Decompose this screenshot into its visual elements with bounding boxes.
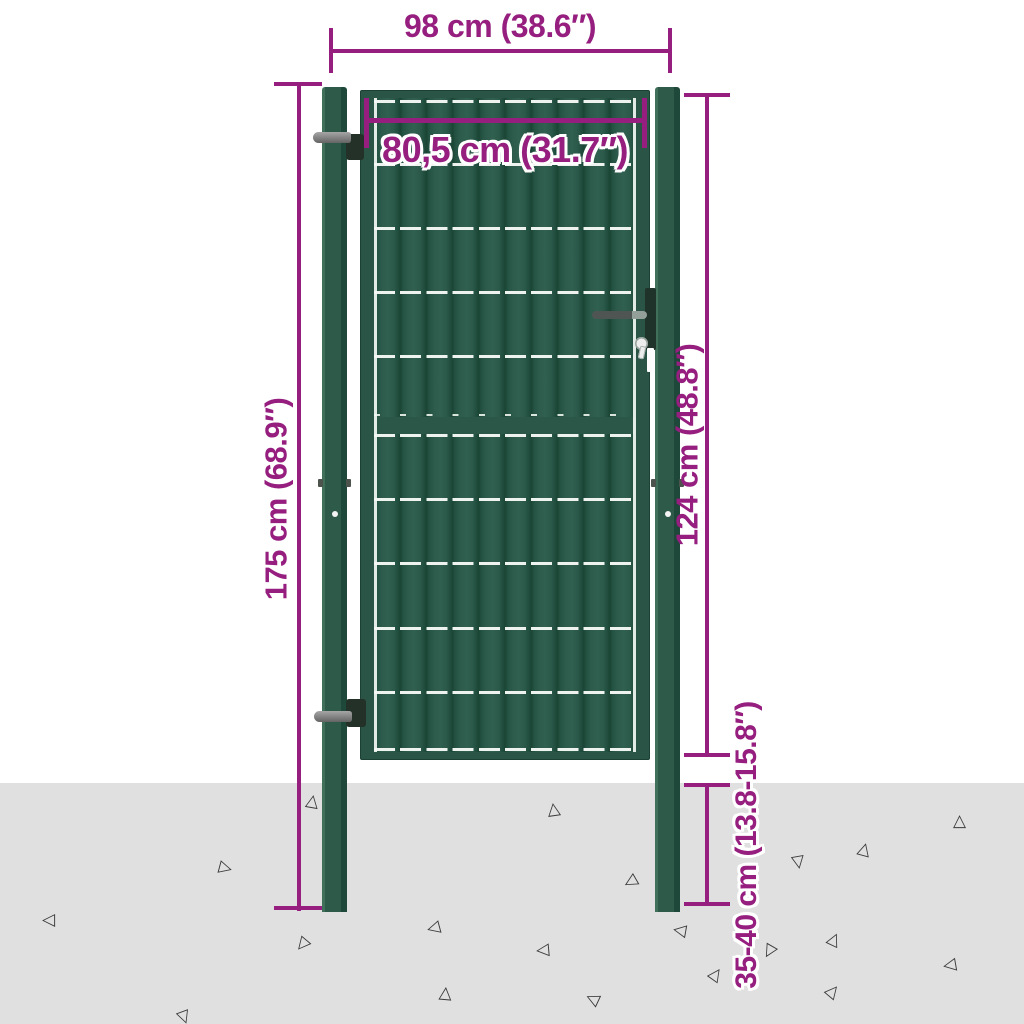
mesh-wire — [374, 291, 636, 294]
dimension-tick — [684, 902, 730, 906]
fence-gate-dimension-diagram: △ △ △ △ △ △ △ △ △ △ △ △ △ △ △ △ △ △ △ △ — [0, 0, 1024, 1024]
gate-middle-rail — [374, 417, 636, 434]
bottom-hinge-bolt-icon — [314, 711, 352, 722]
dimension-tick — [329, 28, 333, 73]
panel-edge-wire — [633, 98, 636, 752]
dimension-line — [331, 49, 671, 53]
mesh-wire — [374, 434, 636, 437]
mesh-wire — [374, 562, 636, 565]
dimension-tick — [642, 98, 647, 148]
dimension-tick — [274, 82, 322, 86]
triangle-mark-icon: △ — [669, 923, 688, 939]
triangle-mark-icon: △ — [39, 914, 56, 927]
dimension-label-gate-height: 124 cm (48.8″) — [672, 344, 703, 547]
triangle-mark-icon: △ — [791, 854, 807, 873]
gate-panel — [374, 98, 636, 752]
mesh-wire — [374, 227, 636, 230]
triangle-mark-icon: △ — [438, 983, 453, 1001]
dimension-label-post-height: 175 cm (68.9″) — [261, 398, 292, 601]
dimension-tick — [684, 753, 730, 757]
mesh-wire — [374, 355, 636, 358]
dimension-label-gate-width: 80,5 cm (31.7″) — [382, 132, 628, 168]
dimension-line — [705, 785, 709, 906]
triangle-mark-icon: △ — [546, 799, 561, 818]
mesh-wire — [374, 414, 636, 416]
top-hinge-bolt-icon — [313, 132, 351, 143]
dimension-tick — [668, 28, 672, 73]
post-bolt-nub — [651, 479, 656, 487]
dimension-label-opening-width: 98 cm (38.6″) — [404, 10, 596, 42]
dimension-line — [366, 118, 646, 123]
post-bolt-nub — [318, 479, 323, 487]
mesh-wire — [374, 100, 636, 103]
dimension-tick — [364, 98, 369, 148]
mesh-wire — [374, 748, 636, 751]
triangle-mark-icon: △ — [533, 943, 551, 958]
gate-handle — [592, 311, 647, 319]
dimension-tick — [684, 783, 730, 787]
gate-frame — [360, 90, 650, 760]
post-hole-dot — [332, 511, 338, 517]
triangle-mark-icon: △ — [953, 812, 966, 829]
lock-slot — [647, 348, 654, 372]
mesh-wire — [374, 691, 636, 694]
left-post — [322, 87, 347, 912]
post-bolt-nub — [346, 479, 351, 487]
dimension-tick — [684, 93, 730, 97]
ground — [0, 783, 1024, 1024]
mesh-wire — [374, 498, 636, 501]
dimension-line — [297, 84, 301, 911]
dimension-label-underground-depth: 35-40 cm (13.8-15.8″) — [732, 701, 762, 988]
dimension-line — [705, 95, 709, 757]
mesh-wire — [374, 627, 636, 630]
panel-edge-wire — [374, 98, 377, 752]
dimension-tick — [274, 906, 322, 910]
